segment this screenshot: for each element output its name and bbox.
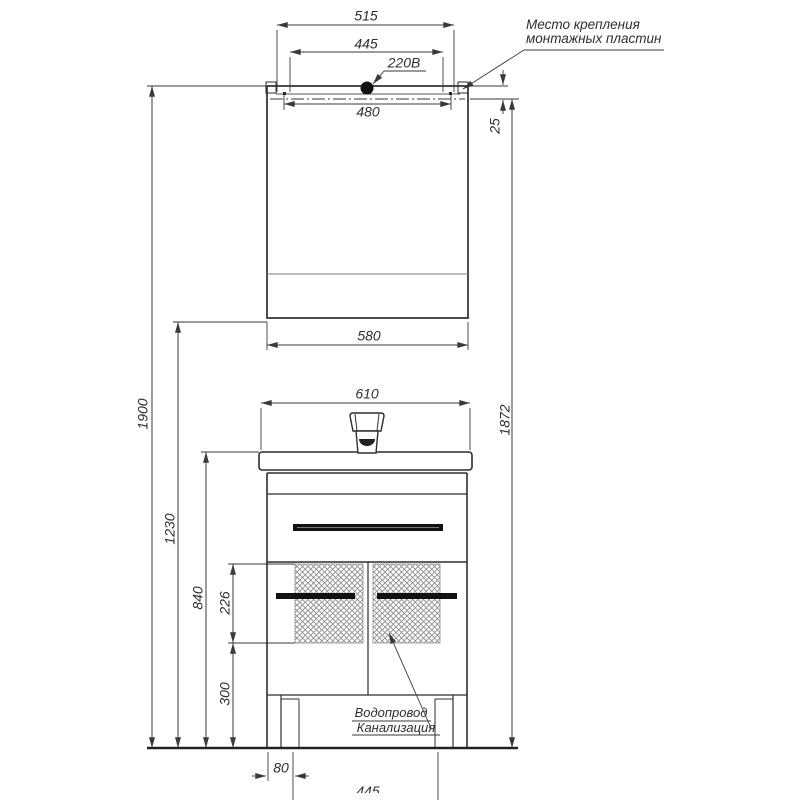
mirror-outline: [267, 86, 468, 318]
washbasin: [259, 452, 472, 470]
dim-300: 300: [218, 682, 233, 705]
technical-drawing: 515 445 480 220В Место крепления монтажн…: [0, 0, 800, 800]
power-outlet-label: 220В: [388, 56, 421, 71]
dim-580: 580: [357, 329, 380, 344]
mount-hole-left: [283, 92, 286, 95]
dim-1230: 1230: [163, 513, 178, 544]
dim-840: 840: [191, 586, 206, 609]
dim-25: 25: [488, 118, 503, 134]
hatch-left: [295, 564, 363, 643]
dim-445-bottom: 445: [356, 783, 379, 793]
dim-610: 610: [355, 387, 378, 402]
dim-80: 80: [273, 761, 289, 776]
dim-1872: 1872: [498, 404, 513, 435]
door-handle-right: [377, 593, 457, 599]
mounting-plates-note-line2: монтажных пластин: [526, 32, 661, 46]
vanity-unit: [259, 413, 472, 748]
mounting-plates-note-line1: Место крепления: [526, 18, 661, 32]
sewerage-label: Канализация: [357, 721, 435, 735]
mounting-leader: [463, 50, 524, 89]
mounting-plates-note: Место крепления монтажных пластин: [526, 18, 661, 46]
power-leader: [373, 71, 384, 84]
dim-480: 480: [356, 105, 379, 120]
power-outlet-dot: [361, 82, 374, 95]
dim-445-bottom-clip: 445: [348, 783, 388, 793]
dim-515: 515: [354, 9, 377, 24]
mount-hole-right: [449, 92, 452, 95]
dim-226: 226: [218, 591, 233, 614]
dim-445-top: 445: [354, 37, 377, 52]
faucet-icon: [350, 413, 384, 453]
hatch-right: [373, 564, 440, 643]
door-handle-left: [276, 593, 355, 599]
drawing-canvas: [0, 0, 800, 800]
dim-1900: 1900: [136, 398, 151, 429]
water-supply-label: Водопровод: [355, 706, 428, 720]
